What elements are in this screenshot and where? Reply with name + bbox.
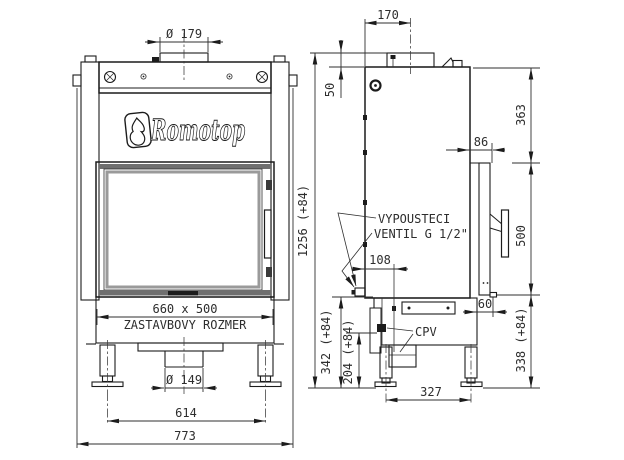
- front-left-leg: [92, 340, 123, 392]
- brand-logo-text: Romotop: [150, 113, 245, 147]
- side-view: [352, 18, 509, 404]
- label-drain-valve-2: VENTIL G 1/2": [374, 227, 468, 241]
- label-build-in-size: ZASTAVBOVY ROZMER: [124, 318, 248, 332]
- label-drain-valve-1: VYPOUSTECI: [378, 212, 450, 226]
- dim-door-bottom-height: 338 (+84): [514, 307, 528, 372]
- front-view: Romotop: [73, 53, 297, 394]
- door-hinge: [266, 267, 272, 277]
- front-door: [96, 162, 274, 297]
- plate-hole: [141, 74, 232, 79]
- dim-door-depth: 86: [474, 135, 488, 149]
- door-glass: [107, 172, 259, 287]
- air-intake-hole: [371, 81, 381, 91]
- dim-valve-height: 342 (+84): [319, 309, 333, 374]
- dim-flue-offset: 170: [377, 8, 399, 22]
- side-door: [470, 163, 509, 297]
- side-rear-leg: [461, 344, 482, 404]
- romotop-logo: Romotop: [124, 112, 245, 148]
- dim-valve-offset: 108: [369, 253, 391, 267]
- damper-lever: [442, 58, 462, 67]
- door-handle: [265, 210, 272, 258]
- label-cpv: CPV: [415, 325, 437, 339]
- dim-door-height: 500: [514, 225, 528, 247]
- dim-glass-size: 660 x 500: [152, 302, 217, 316]
- dim-overall-width: 773: [174, 429, 196, 443]
- dim-leg-span: 614: [175, 406, 197, 420]
- dim-leg-spacing: 327: [420, 385, 442, 399]
- dim-door-gap: 60: [478, 297, 492, 311]
- screw-icon: [257, 72, 268, 83]
- fireplace-drawing: Romotop: [0, 0, 624, 460]
- door-hinge: [266, 180, 272, 190]
- cpv-connector: [377, 324, 386, 332]
- dim-overall-height: 1256 (+84): [296, 185, 310, 257]
- dim-flue-diameter: Ø 179: [166, 27, 202, 41]
- flame-badge-icon: [124, 112, 151, 148]
- dim-outlet-diameter: Ø 149: [166, 373, 202, 387]
- screw-icon: [105, 72, 116, 83]
- front-right-leg: [250, 340, 281, 392]
- dim-collar-drop: 50: [323, 83, 337, 97]
- door-latch: [168, 291, 198, 296]
- side-door-handle: [502, 210, 509, 257]
- dim-top-to-door: 363: [514, 104, 528, 126]
- side-flue-collar: [387, 18, 434, 74]
- technical-drawing-canvas: Romotop: [0, 0, 624, 460]
- dim-cpv-height: 204 (+84): [341, 319, 355, 384]
- drain-valve: [352, 288, 366, 296]
